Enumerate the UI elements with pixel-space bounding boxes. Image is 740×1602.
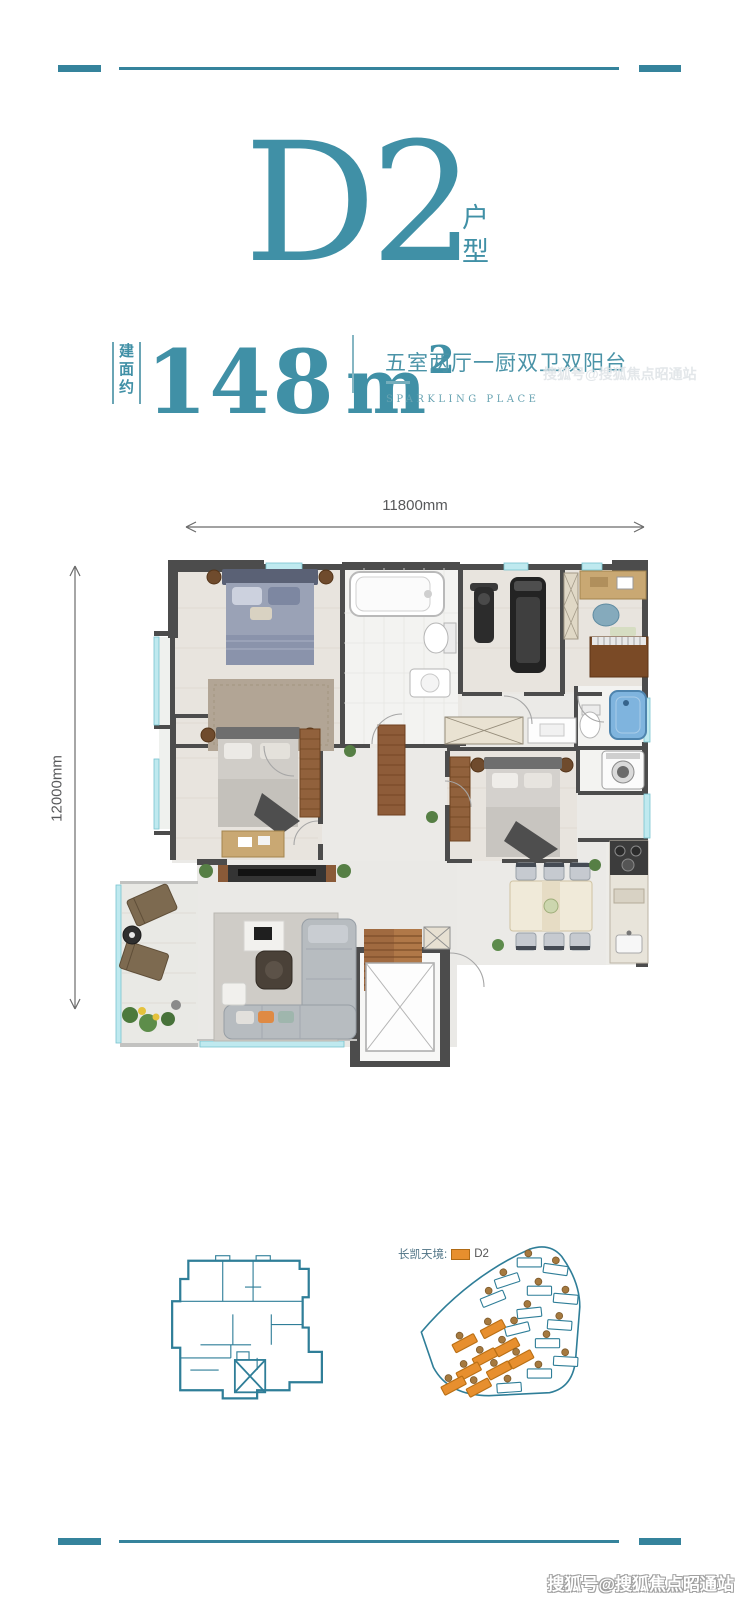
watermark-bottom: 搜狐号@搜狐焦点昭通站 — [547, 1570, 734, 1595]
stats-inner-rule — [139, 342, 141, 404]
dimension-width-label: 11800mm — [180, 497, 650, 514]
kitchen-sink — [616, 935, 642, 953]
kitchen — [610, 841, 648, 963]
wardrobe-3 — [450, 757, 470, 841]
bottom-border-right-dash — [639, 1538, 681, 1545]
dimension-depth-label: 12000mm — [49, 739, 66, 839]
top-border-right-dash — [639, 65, 681, 72]
site-plan — [388, 1236, 600, 1408]
toilet-2 — [580, 712, 600, 738]
area-value: 148 — [146, 330, 336, 434]
bottom-border-left-dash — [58, 1538, 101, 1545]
laundry — [602, 751, 644, 789]
elevator — [366, 963, 434, 1051]
hall-wardrobe — [378, 725, 405, 815]
tagline-dash — [386, 381, 410, 384]
nightstand — [207, 570, 221, 584]
stats-left-rule — [112, 342, 114, 404]
plant-icon — [492, 939, 504, 951]
bed-2 — [216, 727, 300, 739]
floorplan-poster: D2 户型 建面约 148m2 五室两厅一厨双卫双阳台 SPARKLING PL… — [0, 0, 740, 1602]
shower — [610, 691, 646, 739]
tagline-en: SPARKLING PLACE — [386, 394, 539, 405]
unit-type-suffix: 户型 — [454, 203, 493, 271]
area-prefix: 建面约 — [115, 343, 136, 397]
bottom-border-line — [119, 1540, 619, 1543]
plant-icon — [199, 864, 213, 878]
plant-icon — [426, 811, 438, 823]
stats-divider — [352, 335, 354, 393]
unit-type-title: D2 — [244, 104, 469, 302]
chair — [593, 604, 619, 626]
plant-icon — [122, 1007, 138, 1023]
top-border-left-dash — [58, 65, 101, 72]
tv — [238, 869, 316, 876]
dimension-depth-line — [65, 560, 85, 1015]
dimension-width-line — [180, 517, 650, 537]
nightstand — [319, 570, 333, 584]
sunflower-icon — [153, 1014, 160, 1021]
plant-icon — [337, 864, 351, 878]
desk — [580, 571, 646, 599]
top-border-line — [119, 67, 619, 70]
plant-icon — [344, 745, 356, 757]
key-plan — [160, 1238, 332, 1406]
plant-icon — [161, 1012, 175, 1026]
master-bed — [222, 569, 318, 585]
sunflower-icon — [138, 1007, 146, 1015]
desk-2 — [222, 831, 284, 857]
wardrobe-2 — [300, 729, 320, 817]
wardrobe — [564, 573, 578, 639]
watermark-middle: 搜狐号@搜狐焦点昭通站 — [543, 364, 697, 384]
plant-icon — [589, 859, 601, 871]
bed-3 — [484, 757, 562, 769]
floor-plan — [112, 553, 658, 1070]
